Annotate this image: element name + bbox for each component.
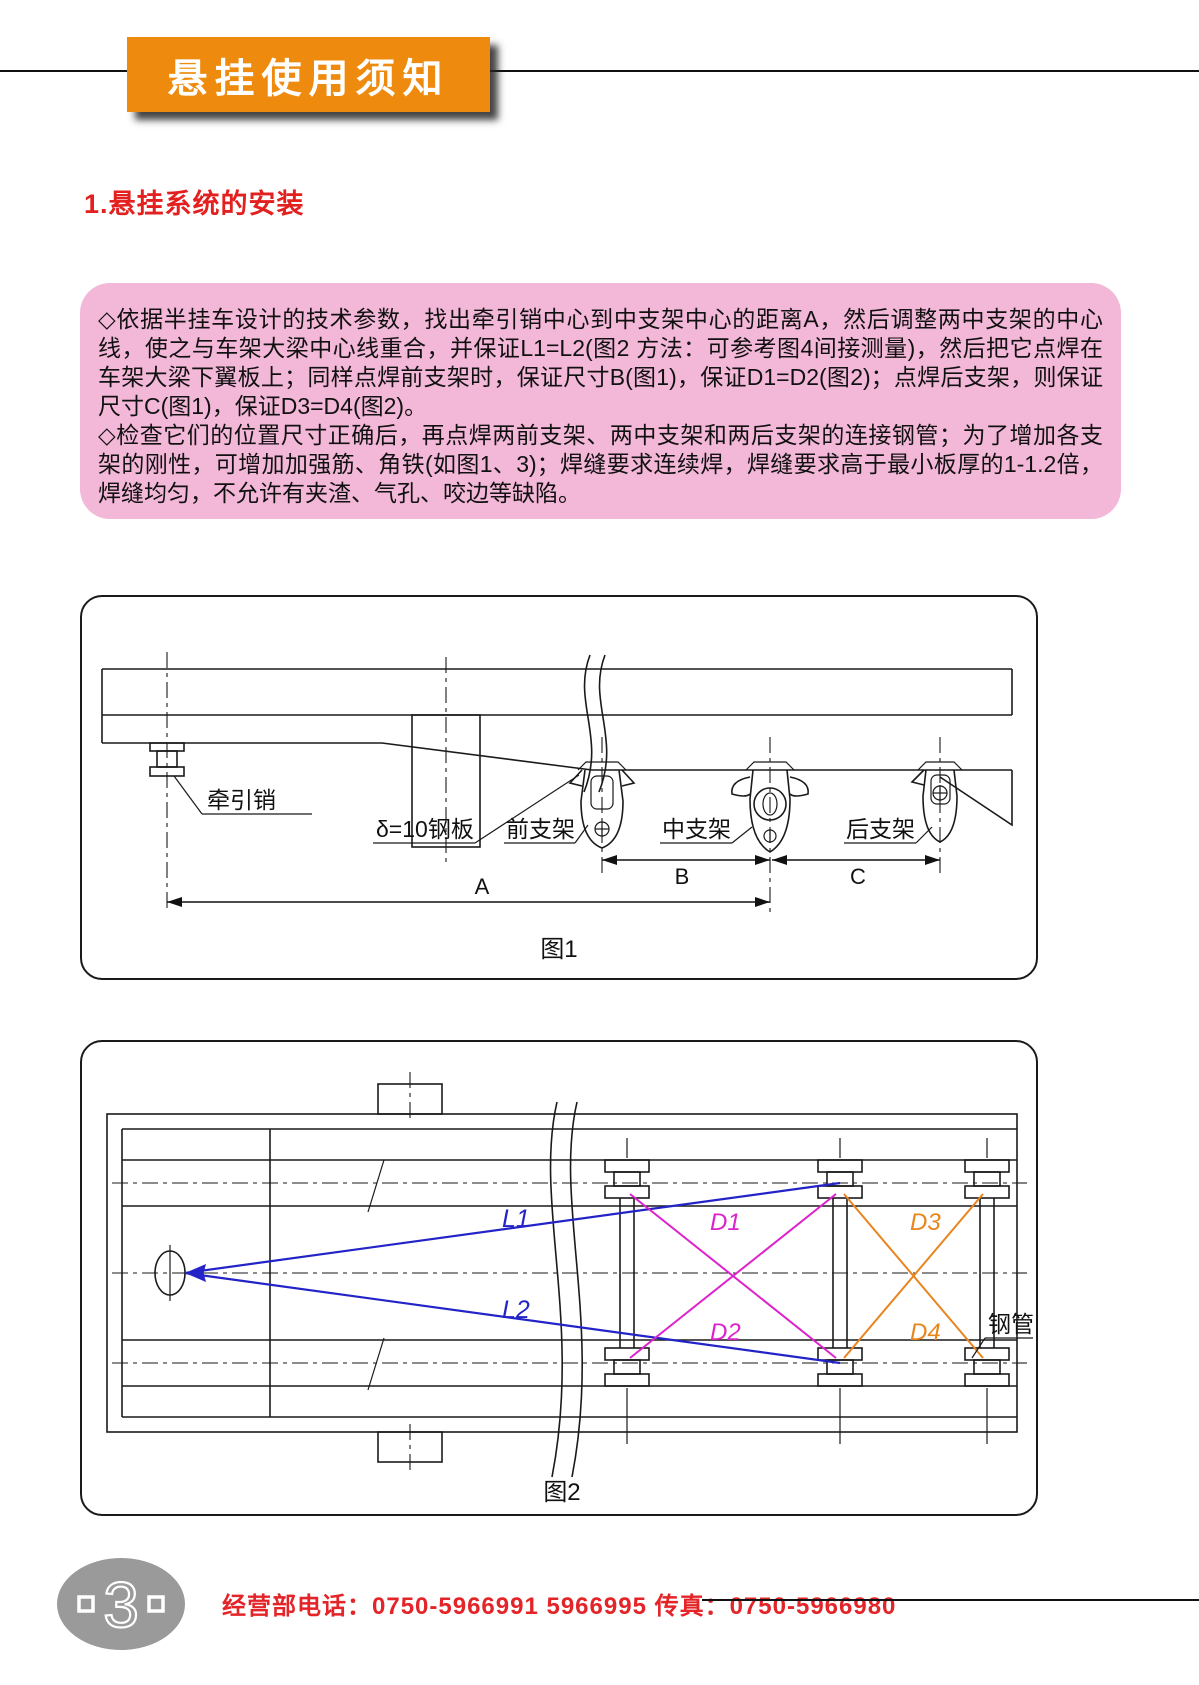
d1-label: D1: [710, 1209, 741, 1236]
title-banner: 悬挂使用须知: [127, 37, 490, 112]
pipe-label-group: 钢管: [972, 1311, 1034, 1358]
dim-a-label: A: [475, 874, 490, 899]
figure1-caption: 图1: [540, 936, 577, 963]
rear-bracket-label: 后支架: [846, 816, 915, 842]
footer-rule: [702, 1599, 1199, 1601]
pipe-label: 钢管: [988, 1311, 1034, 1337]
notice-paragraph-1: ◇依据半挂车设计的技术参数，找出牵引销中心到中支架中心的距离A，然后调整两中支架…: [98, 305, 1103, 421]
plate-label: δ=10钢板: [376, 816, 474, 842]
notice-paragraph-2: ◇检查它们的位置尺寸正确后，再点焊两前支架、两中支架和两后支架的连接钢管；为了增…: [98, 421, 1103, 508]
page-number: 3: [103, 1569, 139, 1641]
rear-bracket-glyph: [912, 737, 962, 873]
dim-c-label: C: [850, 864, 866, 889]
trailer-frame-plan-view: [107, 1072, 1027, 1477]
section-heading: 1.悬挂系统的安装: [84, 182, 305, 221]
figure2-caption: 图2: [543, 1479, 580, 1506]
l1-label: L1: [502, 1205, 530, 1233]
cross-pipe-rear: [965, 1138, 1009, 1444]
figure2-drawing: L1 L2 D1 D2 D3 D4 钢管 图2: [82, 1042, 1036, 1514]
d4-label: D4: [910, 1319, 941, 1346]
dim-b-label: B: [675, 864, 690, 889]
figure1-dimensions: B C A: [167, 855, 940, 907]
front-bracket-glyph: [570, 737, 634, 873]
cross-pipe-front: [605, 1138, 649, 1444]
d2-label: D2: [710, 1319, 741, 1346]
figure1-labels: 牵引销 δ=10钢板 前支架 中支架 后支架: [174, 775, 932, 843]
figure1-drawing: 牵引销 δ=10钢板 前支架 中支架 后支架: [82, 597, 1036, 978]
l2-label: L2: [502, 1296, 530, 1324]
middle-bracket-glyph: [732, 737, 808, 913]
document-page: 悬挂使用须知 1.悬挂系统的安装 ◇依据半挂车设计的技术参数，找出牵引销中心到中…: [0, 0, 1199, 1685]
notice-box: ◇依据半挂车设计的技术参数，找出牵引销中心到中支架中心的距离A，然后调整两中支架…: [80, 283, 1121, 519]
figure1-box: 牵引销 δ=10钢板 前支架 中支架 后支架: [80, 595, 1038, 980]
footer-contact: 经营部电话：0750-5966991 5966995 传真：0750-59669…: [222, 1586, 896, 1621]
kingpin-label: 牵引销: [207, 787, 276, 813]
page-title: 悬挂使用须知: [168, 46, 450, 104]
middle-bracket-label: 中支架: [662, 816, 731, 842]
d3-label: D3: [910, 1209, 941, 1236]
page-number-badge: 3: [55, 1556, 187, 1657]
front-bracket-label: 前支架: [506, 816, 575, 842]
figure2-box: L1 L2 D1 D2 D3 D4 钢管 图2: [80, 1040, 1038, 1516]
